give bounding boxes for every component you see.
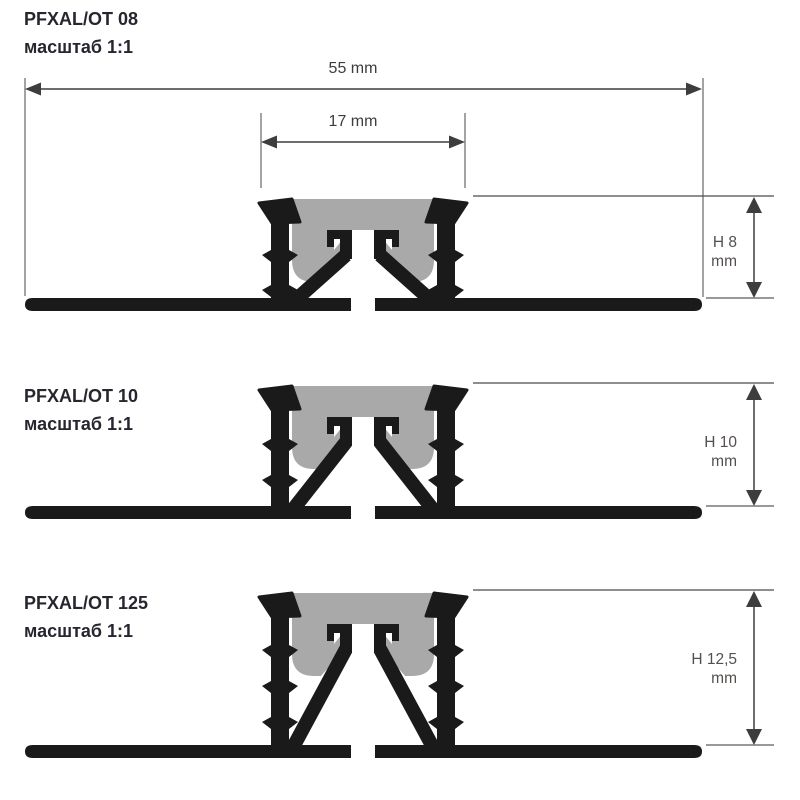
profile-2-height-label: H 10 mm xyxy=(637,433,737,471)
profile-1-title-block: PFXAL/OT 08 масштаб 1:1 xyxy=(24,5,138,61)
profile-3-name: PFXAL/OT 125 xyxy=(24,589,148,617)
profile-2-height-unit: mm xyxy=(637,452,737,471)
profile-1-name: PFXAL/OT 08 xyxy=(24,5,138,33)
profile-2-title-block: PFXAL/OT 10 масштаб 1:1 xyxy=(24,382,138,438)
profile-2-height-value: H 10 xyxy=(637,433,737,452)
profile-1-cross-section xyxy=(25,199,702,311)
profile-3-height-label: H 12,5 mm xyxy=(637,650,737,688)
technical-drawing-page: PFXAL/OT 08 масштаб 1:1 PFXAL/OT 10 масш… xyxy=(0,0,800,800)
profile-1-height-unit: mm xyxy=(637,252,737,271)
total-width-dimension-label: 55 mm xyxy=(278,60,428,78)
profile-1-scale: масштаб 1:1 xyxy=(24,33,138,61)
profile-1-height-value: H 8 xyxy=(637,233,737,252)
profile-3-title-block: PFXAL/OT 125 масштаб 1:1 xyxy=(24,589,148,645)
inner-width-dimension-label: 17 mm xyxy=(278,113,428,131)
profile-3-height-unit: mm xyxy=(637,669,737,688)
profile-1-height-label: H 8 mm xyxy=(637,233,737,271)
profile-2-name: PFXAL/OT 10 xyxy=(24,382,138,410)
profile-2-scale: масштаб 1:1 xyxy=(24,410,138,438)
profile-3-scale: масштаб 1:1 xyxy=(24,617,148,645)
profile-3-height-value: H 12,5 xyxy=(637,650,737,669)
